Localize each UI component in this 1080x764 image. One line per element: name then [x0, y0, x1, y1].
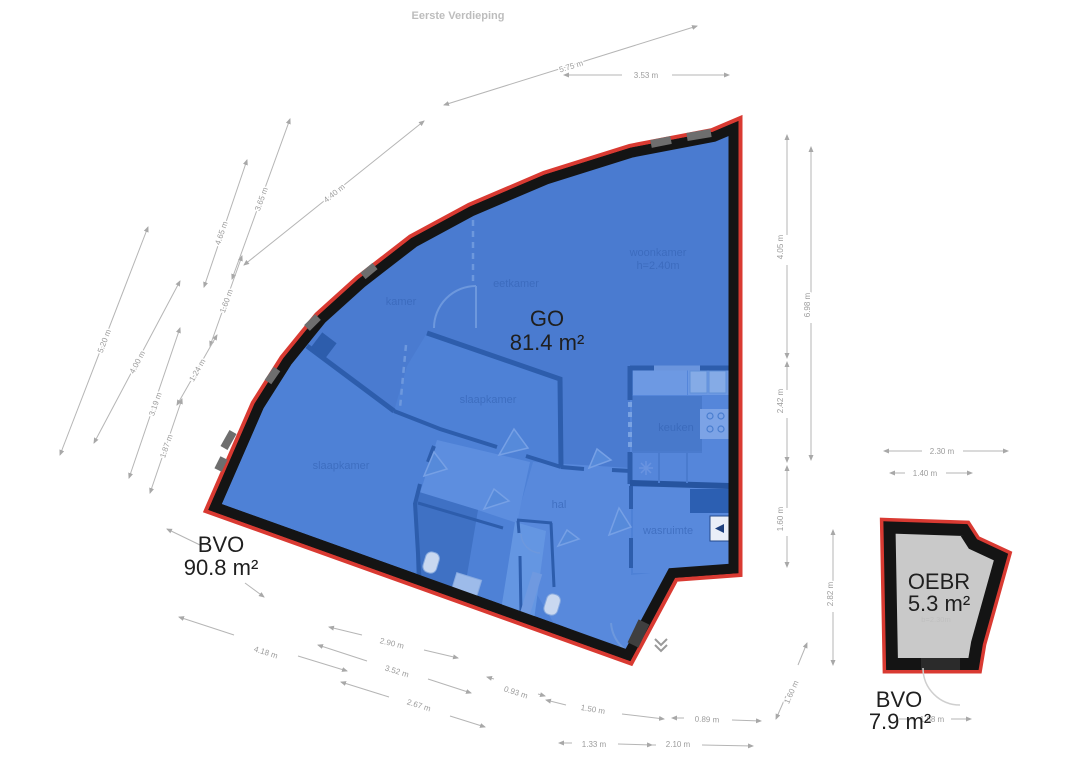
svg-text:h=2.40m: h=2.40m [636, 260, 679, 272]
svg-text:wasruimte: wasruimte [642, 525, 693, 537]
svg-text:5.75 m: 5.75 m [558, 59, 584, 75]
svg-text:Eerste Verdieping: Eerste Verdieping [412, 10, 505, 22]
svg-text:2.67 m: 2.67 m [406, 698, 432, 714]
svg-text:1.60 m: 1.60 m [776, 506, 785, 531]
svg-text:kamer: kamer [386, 296, 417, 308]
svg-text:1.60 m: 1.60 m [218, 288, 235, 314]
svg-text:1.50 m: 1.50 m [580, 703, 606, 716]
svg-text:4.00 m: 4.00 m [128, 349, 148, 375]
svg-text:woonkamer: woonkamer [629, 247, 687, 259]
svg-text:hal: hal [552, 499, 567, 511]
svg-text:slaapkamer: slaapkamer [460, 394, 517, 406]
svg-text:0.89 m: 0.89 m [695, 715, 720, 725]
svg-text:b=2.30m: b=2.30m [921, 615, 950, 624]
svg-text:6.98 m: 6.98 m [803, 292, 812, 317]
svg-text:3.53 m: 3.53 m [634, 71, 659, 80]
svg-text:5.20 m: 5.20 m [96, 328, 113, 354]
svg-text:1.87 m: 1.87 m [158, 433, 175, 459]
svg-text:5.3 m²: 5.3 m² [908, 591, 970, 616]
svg-text:2.90 m: 2.90 m [379, 636, 405, 651]
svg-text:eetkamer: eetkamer [493, 278, 539, 290]
svg-text:4.05 m: 4.05 m [776, 234, 785, 259]
svg-text:1.60 m: 1.60 m [782, 679, 800, 705]
svg-text:GO: GO [530, 306, 564, 331]
svg-text:1.24 m: 1.24 m [187, 357, 207, 383]
svg-text:slaapkamer: slaapkamer [313, 460, 370, 472]
svg-text:7.9 m²: 7.9 m² [869, 709, 931, 734]
svg-text:90.8 m²: 90.8 m² [184, 555, 259, 580]
svg-text:3.19 m: 3.19 m [147, 391, 164, 417]
svg-text:2.10 m: 2.10 m [666, 740, 691, 749]
svg-text:0.93 m: 0.93 m [503, 684, 529, 700]
svg-text:2.82 m: 2.82 m [826, 581, 835, 606]
svg-text:4.65 m: 4.65 m [213, 220, 230, 246]
svg-text:3.65 m: 3.65 m [253, 186, 270, 212]
svg-text:81.4 m²: 81.4 m² [510, 330, 585, 355]
svg-text:1.40 m: 1.40 m [913, 469, 938, 478]
svg-text:keuken: keuken [658, 422, 693, 434]
svg-text:2.30 m: 2.30 m [930, 447, 955, 456]
svg-text:4.18 m: 4.18 m [253, 644, 279, 660]
svg-text:1.33 m: 1.33 m [582, 740, 607, 749]
svg-text:4.40 m: 4.40 m [322, 182, 347, 204]
svg-text:2.42 m: 2.42 m [776, 388, 785, 413]
svg-text:BVO: BVO [198, 532, 244, 557]
svg-text:3.52 m: 3.52 m [384, 664, 410, 680]
